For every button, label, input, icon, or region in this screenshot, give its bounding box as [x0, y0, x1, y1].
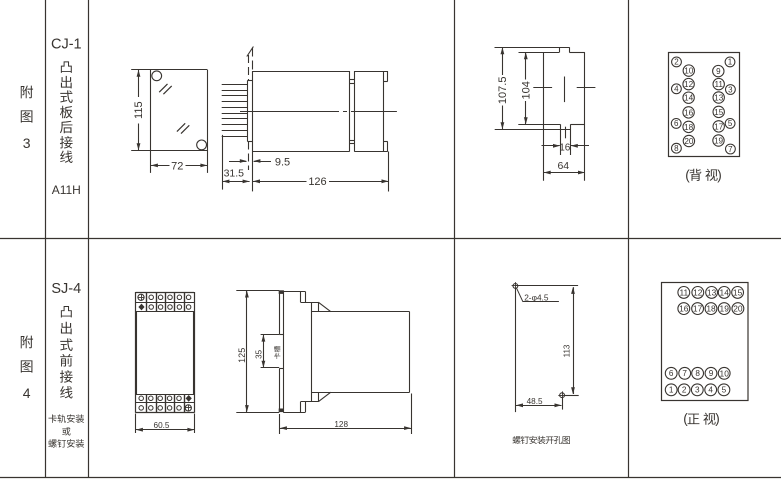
svg-text:3: 3 [23, 135, 31, 151]
svg-text:64: 64 [557, 160, 569, 172]
svg-text:31.5: 31.5 [224, 168, 245, 180]
svg-text:1: 1 [669, 386, 674, 395]
svg-text:3: 3 [728, 85, 733, 94]
svg-text:20: 20 [684, 137, 694, 146]
svg-text:125: 125 [237, 348, 247, 363]
svg-text:8: 8 [695, 369, 700, 378]
svg-text:8: 8 [674, 144, 679, 153]
svg-text:5: 5 [722, 386, 727, 395]
svg-text:72: 72 [171, 160, 183, 172]
svg-text:7: 7 [682, 369, 687, 378]
svg-text:(: ( [685, 167, 690, 182]
svg-text:15: 15 [714, 108, 724, 117]
svg-text:18: 18 [706, 304, 716, 314]
svg-text:10: 10 [684, 67, 694, 76]
svg-text:60.5: 60.5 [154, 421, 170, 430]
svg-text:35: 35 [255, 349, 264, 358]
svg-text:128: 128 [334, 420, 348, 429]
svg-text:SJ-4: SJ-4 [51, 281, 81, 297]
svg-text:19: 19 [714, 136, 724, 145]
svg-text:9.5: 9.5 [275, 157, 290, 169]
svg-text:113: 113 [562, 344, 571, 357]
svg-text:16: 16 [679, 304, 689, 314]
svg-text:9: 9 [716, 67, 721, 76]
svg-text:4: 4 [674, 85, 679, 94]
svg-text:11: 11 [679, 287, 688, 297]
svg-text:2-φ4.5: 2-φ4.5 [524, 293, 549, 303]
svg-text:104: 104 [521, 81, 533, 99]
svg-text:10: 10 [720, 368, 730, 378]
svg-text:115: 115 [133, 101, 145, 119]
svg-text:19: 19 [720, 304, 730, 314]
svg-text:16: 16 [559, 142, 571, 153]
svg-text:13: 13 [707, 287, 717, 297]
svg-text:1: 1 [728, 58, 733, 67]
svg-text:4: 4 [23, 385, 31, 401]
svg-text:11: 11 [714, 80, 723, 89]
svg-text:12: 12 [684, 80, 694, 89]
svg-text:6: 6 [669, 369, 674, 378]
svg-text:13: 13 [714, 93, 724, 102]
svg-text:): ) [715, 411, 720, 426]
svg-text:18: 18 [684, 123, 694, 132]
svg-text:12: 12 [693, 287, 703, 297]
svg-text:20: 20 [733, 304, 743, 314]
svg-text:5: 5 [728, 119, 733, 128]
svg-text:CJ-1: CJ-1 [51, 36, 82, 52]
svg-text:3: 3 [695, 386, 700, 395]
svg-text:): ) [717, 167, 722, 182]
svg-text:17: 17 [693, 304, 703, 314]
svg-text:A11H: A11H [52, 183, 81, 197]
svg-text:17: 17 [714, 122, 724, 131]
svg-text:6: 6 [674, 119, 679, 128]
svg-text:9: 9 [709, 369, 714, 378]
svg-text:2: 2 [674, 58, 679, 67]
svg-text:14: 14 [720, 287, 730, 297]
svg-text:15: 15 [733, 287, 743, 297]
svg-text:107.5: 107.5 [497, 77, 509, 105]
svg-text:(: ( [683, 411, 688, 426]
svg-text:4: 4 [708, 386, 713, 395]
svg-text:126: 126 [308, 176, 326, 188]
svg-text:14: 14 [684, 94, 694, 103]
svg-text:7: 7 [728, 145, 733, 154]
svg-text:2: 2 [682, 386, 687, 395]
svg-text:48.5: 48.5 [527, 397, 543, 406]
svg-text:16: 16 [684, 108, 694, 117]
